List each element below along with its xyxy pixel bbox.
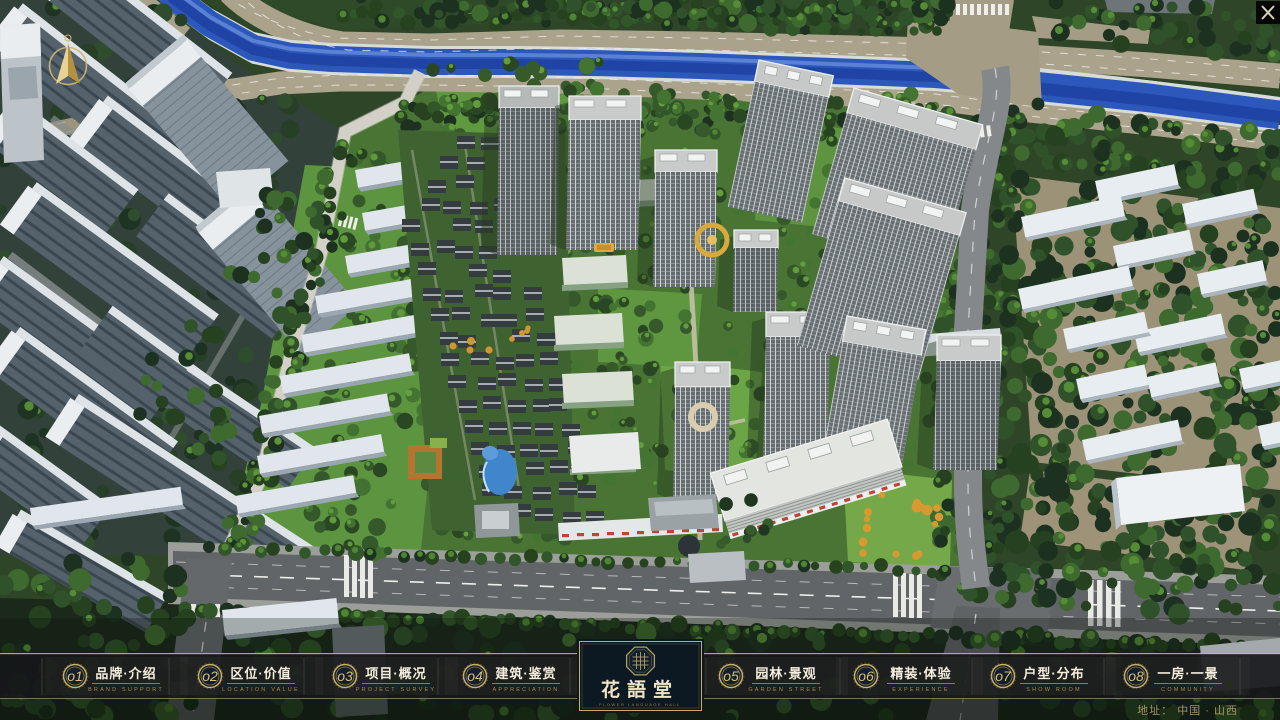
svg-text:o3: o3 (337, 668, 353, 684)
svg-text:园林·景观: 园林·景观 (755, 666, 816, 681)
svg-text:BRAND SUPPORT: BRAND SUPPORT (88, 687, 164, 693)
svg-text:精装·体验: 精装·体验 (890, 666, 951, 681)
svg-text:EXPERIENCE: EXPERIENCE (892, 687, 949, 693)
svg-text:APPRECIATION: APPRECIATION (493, 687, 560, 693)
svg-text:一房·一景: 一房·一景 (1157, 666, 1218, 681)
svg-text:户型·分布: 户型·分布 (1023, 666, 1084, 681)
svg-text:o5: o5 (723, 668, 739, 684)
svg-text:建筑·鉴赏: 建筑·鉴赏 (495, 666, 556, 681)
svg-text:o4: o4 (467, 668, 483, 684)
svg-text:SHOW ROOM: SHOW ROOM (1026, 687, 1082, 693)
svg-text:LOCATION VALUE: LOCATION VALUE (222, 687, 300, 693)
svg-text:o8: o8 (1128, 668, 1144, 684)
svg-text:地址： 中国 · 山西: 地址： 中国 · 山西 (1137, 703, 1238, 717)
svg-text:PROJECT SURVEY: PROJECT SURVEY (356, 687, 436, 693)
svg-text:o2: o2 (202, 668, 218, 684)
svg-text:花語堂: 花語堂 (601, 678, 679, 701)
svg-text:o6: o6 (858, 668, 874, 684)
svg-text:FLOWER LANGUAGE HALL: FLOWER LANGUAGE HALL (599, 702, 681, 707)
svg-text:o1: o1 (67, 668, 83, 684)
svg-text:项目·概况: 项目·概况 (365, 666, 426, 681)
svg-text:o7: o7 (995, 668, 1012, 684)
svg-text:品牌·介绍: 品牌·介绍 (95, 666, 156, 681)
svg-text:GARDEN STREET: GARDEN STREET (748, 687, 823, 693)
svg-text:区位·价值: 区位·价值 (230, 666, 291, 681)
svg-text:COMMUNITY: COMMUNITY (1161, 687, 1215, 693)
